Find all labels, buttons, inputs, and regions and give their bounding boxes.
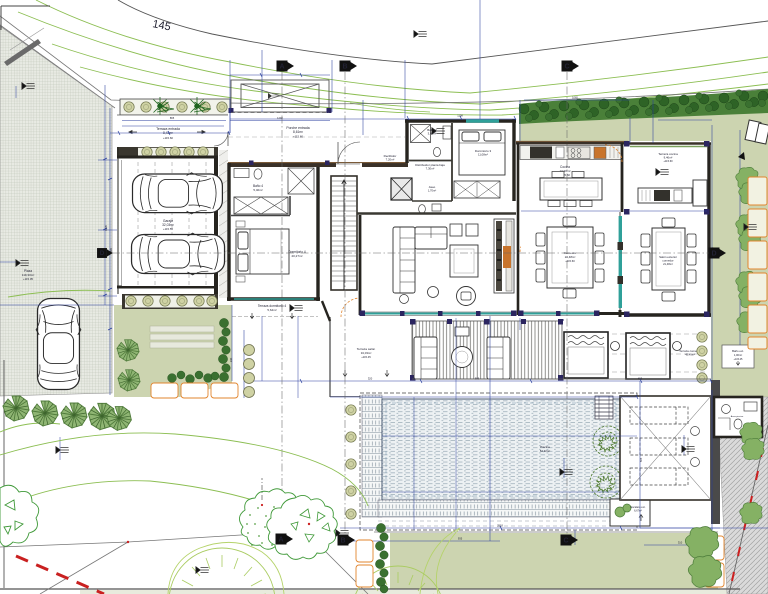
svg-text:5,64m²: 5,64m²	[267, 308, 276, 312]
svg-text:+115.60: +115.60	[163, 136, 173, 140]
svg-text:7,20m²: 7,20m²	[386, 158, 395, 162]
svg-text:1292: 1292	[277, 116, 283, 120]
svg-text:C: C	[564, 63, 569, 70]
svg-text:505: 505	[639, 457, 643, 462]
svg-text:+115.60: +115.60	[565, 259, 575, 263]
svg-text:C: C	[563, 537, 568, 544]
svg-text:Aseo: Aseo	[429, 185, 436, 189]
svg-text:Baño ext.: Baño ext.	[732, 349, 744, 353]
svg-text:B: B	[342, 63, 347, 70]
svg-text:240: 240	[229, 357, 233, 362]
svg-text:B: B	[340, 537, 345, 544]
svg-text:1035: 1035	[104, 225, 108, 231]
svg-text:45,49m²: 45,49m²	[685, 353, 695, 357]
svg-text:Aseo piscina: Aseo piscina	[731, 415, 744, 418]
svg-text:1065: 1065	[572, 96, 578, 100]
svg-text:5,40m²: 5,40m²	[253, 188, 262, 192]
svg-text:+115.45: +115.45	[361, 355, 371, 359]
svg-text:935: 935	[458, 537, 463, 541]
svg-text:6,67m²: 6,67m²	[634, 509, 642, 512]
svg-text:585: 585	[475, 377, 480, 381]
svg-text:455: 455	[638, 377, 643, 381]
svg-text:D: D	[100, 250, 105, 257]
svg-text:11,08m²: 11,08m²	[478, 153, 488, 157]
svg-text:20,27m²: 20,27m²	[291, 254, 302, 258]
svg-text:9,46m²: 9,46m²	[664, 156, 673, 160]
svg-text:A: A	[278, 536, 283, 543]
svg-text:+115.60: +115.60	[293, 135, 303, 139]
svg-text:D: D	[711, 250, 716, 257]
svg-text:1,00m²: 1,00m²	[734, 353, 742, 357]
svg-text:comedor: comedor	[662, 259, 673, 263]
svg-text:34,03m²: 34,03m²	[361, 351, 372, 355]
svg-text:Escalera ext.: Escalera ext.	[631, 505, 646, 509]
svg-text:1108: 1108	[457, 114, 463, 118]
svg-text:+115.55: +115.55	[163, 227, 173, 231]
svg-text:21,48m²: 21,48m²	[663, 262, 673, 266]
svg-text:7,30m²: 7,30m²	[426, 167, 435, 171]
svg-text:1,70m²: 1,70m²	[428, 189, 436, 193]
svg-text:A: A	[279, 63, 284, 70]
svg-text:8,61m²: 8,61m²	[293, 130, 303, 134]
svg-text:24,48m²: 24,48m²	[565, 255, 576, 259]
svg-text:310: 310	[678, 541, 683, 545]
svg-text:54,32m²: 54,32m²	[540, 449, 550, 453]
svg-text:865: 865	[170, 116, 175, 120]
svg-text:320: 320	[368, 377, 373, 381]
svg-text:2518: 2518	[497, 524, 503, 528]
svg-text:+115.60: +115.60	[663, 159, 673, 163]
svg-text:+115.45: +115.45	[734, 358, 744, 361]
svg-text:+115.05: +115.05	[23, 277, 33, 281]
